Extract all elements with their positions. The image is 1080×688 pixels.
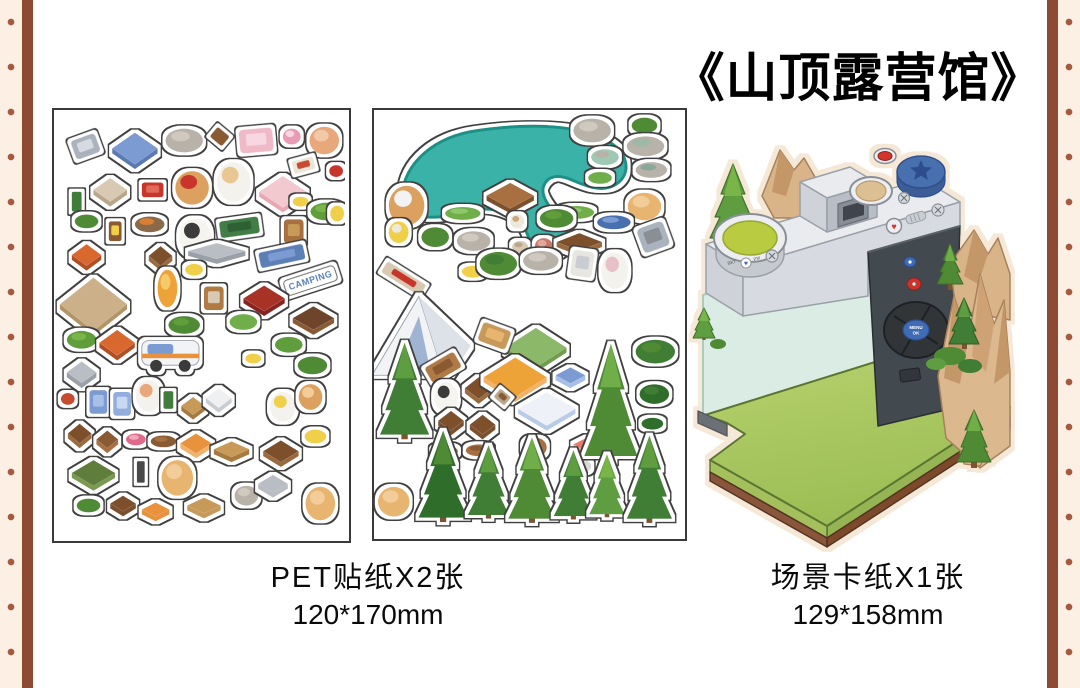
sticker-iso [258, 475, 288, 498]
sticker-ellipse [299, 384, 323, 410]
sticker-ellipse [445, 207, 481, 220]
sticker-sheet-1-art: CAMPING [54, 110, 345, 537]
sticker-ellipse [136, 380, 162, 412]
bush [926, 358, 946, 370]
sticker-iso [187, 498, 221, 519]
sticker-ellipse [270, 392, 296, 422]
sticker-tree [589, 454, 625, 517]
sticker-ellipse [627, 136, 665, 156]
sticker-iso [67, 361, 97, 388]
left-dot-border [0, 0, 22, 688]
sticker-iso [72, 460, 115, 491]
sticker-tree [554, 450, 593, 519]
sticker-ellipse [573, 119, 611, 143]
sticker-ellipse [389, 186, 425, 225]
sticker-ellipse [162, 460, 194, 496]
sticker-rect [137, 461, 145, 483]
sticker-ellipse [602, 252, 629, 289]
sticker-ellipse [389, 221, 409, 243]
sticker-ellipse [510, 214, 524, 228]
sticker-tree [468, 445, 509, 518]
shutter-button [874, 149, 896, 164]
caption-scene-card-size: 129*158mm [688, 597, 1048, 633]
sticker-sign: CAMPING [283, 265, 339, 296]
sticker-ellipse [245, 354, 261, 364]
sticker-ellipse [305, 430, 327, 444]
sticker-ellipse [457, 231, 491, 251]
sticker-ellipse [636, 340, 675, 364]
caption-scene-card: 场景卡纸X1张 129*158mm [688, 560, 1048, 633]
sticker-iso [263, 440, 299, 467]
sticker-iso [259, 176, 306, 212]
sticker-ellipse [168, 316, 200, 334]
sticker-ellipse [185, 264, 203, 276]
left-border-bar [22, 0, 33, 688]
sticker-iso [93, 178, 127, 207]
sticker-sheet-1: CAMPING [52, 108, 351, 543]
svg-text:♥: ♥ [744, 261, 748, 268]
sticker-ellipse [235, 486, 259, 506]
sticker-ellipse [329, 165, 343, 177]
sticker-iso [470, 415, 496, 440]
dpad: MENU OK [884, 302, 948, 358]
sticker-ellipse [61, 393, 75, 405]
menu-label: MENU [909, 325, 922, 330]
svg-text:♥: ♥ [891, 222, 896, 232]
sticker-iso [99, 330, 135, 361]
sticker-rect [636, 220, 671, 254]
sticker-ellipse [512, 241, 528, 253]
sticker-ellipse [158, 270, 178, 307]
sticker-rect [72, 192, 82, 212]
sticker-ellipse [540, 209, 574, 228]
sticker-ellipse [636, 162, 668, 178]
sticker-rect [284, 219, 304, 243]
sticker-ellipse [217, 162, 251, 201]
sticker-ellipse [597, 215, 631, 229]
caption-pet-stickers-size: 120*170mm [52, 597, 684, 633]
sticker-ellipse [523, 251, 559, 271]
sticker-ellipse [283, 129, 301, 145]
heart-button: ♥ [887, 219, 902, 234]
caption-pet-stickers: PET贴纸X2张 120*170mm [52, 560, 684, 633]
sticker-ellipse [588, 172, 612, 184]
sticker-ellipse [135, 216, 165, 232]
sticker-iso [243, 286, 284, 317]
sticker-van [142, 341, 199, 372]
sticker-ellipse [421, 227, 449, 247]
sticker-ellipse [77, 499, 101, 513]
sticker-ellipse [230, 314, 258, 330]
sticker-iso [149, 246, 173, 271]
top-dial-ring [850, 177, 892, 205]
sticker-iso [180, 433, 212, 458]
sticker-iso [60, 278, 127, 336]
sticker-rect [204, 287, 224, 311]
sticker-ellipse [126, 433, 146, 445]
sticker-rect [90, 390, 108, 414]
sticker-iso [293, 306, 334, 335]
sticker-ellipse [165, 129, 202, 153]
sticker-ellipse [462, 266, 484, 278]
sticker-ellipse [628, 193, 662, 221]
sticker-iso [112, 133, 157, 169]
product-poster: 《山顶露营馆》 CAMPING [0, 0, 1080, 688]
sticker-ellipse [309, 127, 339, 155]
camera-lens: BKT ♥ PM [714, 214, 786, 277]
sticker-ellipse [434, 382, 458, 412]
sticker-rect [381, 261, 426, 296]
sticker-iso [110, 496, 136, 517]
sticker-sheet-2 [372, 108, 687, 541]
sticker-ellipse [75, 214, 99, 228]
sticker-ellipse [67, 331, 97, 349]
sticker-ellipse [175, 171, 209, 205]
sticker-rect [163, 391, 173, 409]
sticker-ellipse [275, 337, 303, 353]
sticker-ellipse [151, 435, 177, 447]
sticker-rect [238, 127, 273, 154]
sticker-ellipse [330, 206, 344, 222]
sticker-iso [142, 503, 170, 522]
caption-scene-card-label: 场景卡纸X1张 [688, 560, 1048, 597]
sticker-iso [214, 441, 250, 462]
sticker-tree [418, 431, 467, 523]
lens-glass [723, 221, 777, 255]
sticker-rect [210, 127, 230, 147]
sticker-ellipse [480, 252, 518, 276]
sticker-rect [570, 250, 595, 278]
sticker-tree [584, 344, 637, 462]
sticker-iso [518, 392, 575, 430]
sticker-rect [219, 216, 260, 238]
sticker-iso [72, 244, 102, 271]
page-title: 《山顶露营馆》 [652, 36, 1064, 111]
sticker-rect [109, 221, 122, 241]
sticker-iso [96, 431, 118, 454]
sticker-iso [68, 424, 92, 449]
sticker-ellipse [632, 118, 658, 134]
sticker-rect [142, 182, 164, 197]
sticker-iso [556, 367, 586, 388]
sticker-iso [438, 411, 464, 436]
sticker-ellipse [378, 487, 410, 517]
sticker-ellipse [293, 197, 309, 207]
sticker-ellipse [591, 149, 619, 165]
sticker-rect [258, 243, 306, 268]
sticker-rect [477, 321, 512, 350]
sticker-iso [206, 388, 232, 413]
sticker-ellipse [306, 487, 336, 521]
sticker-ellipse [640, 384, 670, 404]
mode-dial-blue [897, 156, 945, 197]
sticker-rect [291, 156, 315, 174]
ok-label: OK [913, 331, 921, 336]
sticker-ellipse [642, 418, 664, 430]
sticker-iso [181, 397, 205, 420]
sticker-rect [113, 392, 131, 416]
scene-card: BKT ♥ PM [686, 132, 1020, 566]
scene-card-art: BKT ♥ PM [686, 132, 1020, 566]
sticker-ellipse [298, 357, 328, 375]
caption-pet-stickers-label: PET贴纸X2张 [52, 560, 684, 597]
sticker-tree [508, 438, 555, 523]
sticker-sheet-2-art [374, 110, 681, 535]
bush [958, 359, 982, 373]
grip-label [899, 368, 920, 383]
sticker-rect [70, 133, 101, 160]
